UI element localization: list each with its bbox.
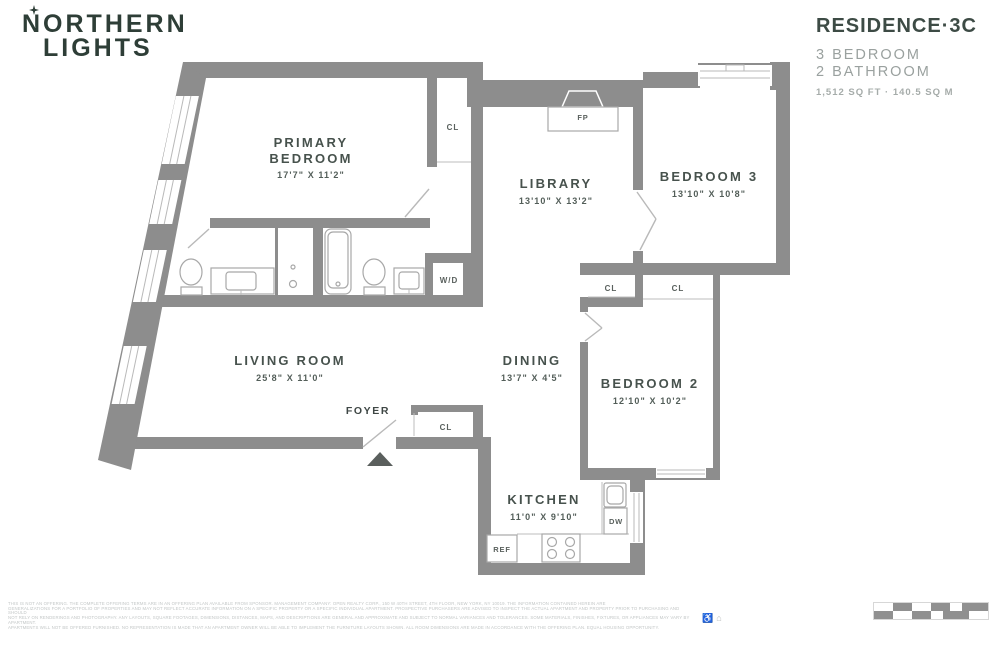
kitchen-window	[629, 492, 645, 543]
door-swing	[585, 328, 602, 341]
fireplace-label: FP	[577, 113, 588, 122]
door-swing	[585, 313, 602, 328]
equal-housing-icon: ⌂	[716, 613, 724, 623]
kitchen-dims: 11'0" X 9'10"	[510, 512, 578, 522]
burner-icon	[548, 538, 557, 547]
dishwasher-label: DW	[609, 517, 623, 526]
bedroom3-window	[698, 64, 772, 86]
living-room-label: LIVING ROOM	[234, 353, 346, 368]
bedroom3-label: BEDROOM 3	[660, 169, 759, 184]
disclaimer-line: APARTMENTS WILL NOT BE OFFERED FURNISHED…	[8, 626, 698, 631]
stove-icon	[542, 534, 580, 562]
toilet-tank	[181, 287, 202, 295]
door-swing	[640, 219, 656, 250]
sink-icon	[399, 272, 419, 289]
burner-icon	[548, 550, 557, 559]
primary-bedroom-label2: BEDROOM	[269, 151, 352, 166]
toilet-icon	[363, 259, 385, 285]
burner-icon	[566, 538, 575, 547]
door-swing	[637, 192, 656, 219]
closet-label: CL	[440, 423, 453, 432]
room-labels: PRIMARY BEDROOM 17'7" X 11'2" LIBRARY 13…	[234, 135, 758, 522]
burner-icon	[566, 550, 575, 559]
closet-label: CL	[605, 284, 618, 293]
bedroom3-dims: 13'10" X 10'8"	[672, 189, 746, 199]
scale-bar	[874, 603, 988, 619]
shower-head-icon	[291, 265, 295, 269]
sink-icon	[226, 272, 256, 290]
floorplan-drawing: FP	[0, 0, 1000, 647]
closet-label: CL	[447, 123, 460, 132]
floorplan-page: { "header": { "logo_line1": "NORTHERN", …	[0, 0, 1000, 647]
dining-label: DINING	[503, 353, 562, 368]
library-dims: 13'10" X 13'2"	[519, 196, 593, 206]
kitchen-label: KITCHEN	[507, 492, 580, 507]
scale-bar-row-top	[874, 603, 988, 611]
walls	[98, 62, 790, 575]
door-swing	[405, 189, 429, 217]
refrigerator-label: REF	[493, 545, 510, 554]
toilet-icon	[180, 259, 202, 285]
bedroom2-window	[656, 466, 706, 480]
toilet-tank	[364, 287, 385, 295]
bedroom2-label: BEDROOM 2	[601, 376, 700, 391]
legal-disclaimer: THIS IS NOT AN OFFERING. THE COMPLETE OF…	[8, 602, 698, 630]
footer-icons: ♿⌂	[702, 613, 725, 624]
bathroom2-fixtures	[325, 229, 424, 295]
bedroom2-dims: 12'10" X 10'2"	[613, 396, 687, 406]
living-room-dims: 25'8" X 11'0"	[256, 373, 324, 383]
door-swing	[188, 229, 209, 248]
primary-bedroom-label: PRIMARY	[274, 135, 349, 150]
foyer-label: FOYER	[346, 405, 390, 417]
bathroom1-fixtures	[180, 259, 297, 295]
closet-label: CL	[672, 284, 685, 293]
entry-door-swing	[363, 420, 396, 447]
library-label: LIBRARY	[520, 176, 593, 191]
shower-drain-icon	[290, 281, 297, 288]
dining-dims: 13'7" X 4'5"	[501, 373, 563, 383]
washer-dryer-label: W/D	[440, 276, 459, 285]
primary-bedroom-dims: 17'7" X 11'2"	[277, 170, 345, 180]
accessibility-icon: ♿	[702, 613, 716, 623]
entry-arrow-icon	[367, 452, 393, 466]
scale-bar-row-bottom	[874, 611, 988, 619]
facade-windows	[112, 96, 199, 404]
